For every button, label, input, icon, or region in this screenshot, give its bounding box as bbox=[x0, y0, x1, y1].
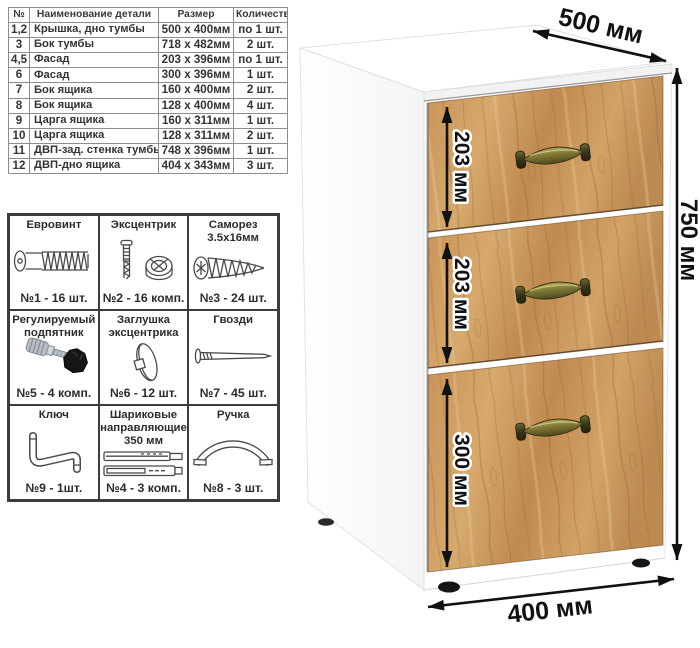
hardware-cell-euro-screw: Евровинт №1 - 16 шт. bbox=[9, 215, 99, 310]
part-number: 8 bbox=[9, 98, 30, 113]
part-name: Фасад bbox=[30, 53, 159, 68]
hardware-title: Ручка bbox=[217, 409, 250, 422]
part-size: 160 х 311мм bbox=[159, 113, 234, 128]
part-number: 1,2 bbox=[9, 23, 30, 38]
part-number: 6 bbox=[9, 68, 30, 83]
part-quantity: 1 шт. bbox=[234, 143, 288, 158]
part-name: Бок тумбы bbox=[30, 38, 159, 53]
part-number: 7 bbox=[9, 83, 30, 98]
hardware-title: Шариковые направляющие 350 мм bbox=[100, 409, 187, 447]
part-quantity: 3 шт. bbox=[234, 158, 288, 173]
hardware-count: №5 - 4 комп. bbox=[16, 386, 91, 400]
hardware-cell-hex-key: Ключ №9 - 1шт. bbox=[9, 405, 99, 500]
parts-row: 9 Царга ящика 160 х 311мм 1 шт. bbox=[9, 113, 288, 128]
hardware-cell-cam-lock: Эксцентрик №2 - 16 комп. bbox=[99, 215, 189, 310]
parts-table: № Наименование детали Размер Количество … bbox=[8, 7, 288, 174]
parts-row: 8 Бок ящика 128 х 400мм 4 шт. bbox=[9, 98, 288, 113]
drawer1-dimension-label: 203 мм bbox=[450, 131, 473, 203]
cam-lock-icon bbox=[102, 232, 184, 291]
hardware-count: №6 - 12 шт. bbox=[110, 386, 177, 400]
hardware-count: №4 - 3 комп. bbox=[106, 481, 181, 495]
parts-row: 1,2 Крышка, дно тумбы 500 х 400мм по 1 ш… bbox=[9, 23, 288, 38]
hardware-title: Заглушка эксцентрика bbox=[101, 314, 187, 340]
parts-table-header-row: № Наименование детали Размер Количество bbox=[9, 8, 288, 23]
hardware-count: №7 - 45 шт. bbox=[200, 386, 267, 400]
part-quantity: 2 шт. bbox=[234, 83, 288, 98]
part-name: Бок ящика bbox=[30, 98, 159, 113]
hardware-cell-drawer-slides: Шариковые направляющие 350 мм №4 - 3 ком… bbox=[99, 405, 189, 500]
part-size: 128 х 400мм bbox=[159, 98, 234, 113]
part-number: 4,5 bbox=[9, 53, 30, 68]
parts-row: 11 ДВП-зад. стенка тумбы 748 х 396мм 1 ш… bbox=[9, 143, 288, 158]
hardware-cell-self-tapping-screw: Саморез 3.5х16мм №3 - 24 шт. bbox=[188, 215, 278, 310]
part-number: 12 bbox=[9, 158, 30, 173]
handle-icon bbox=[191, 422, 275, 481]
part-size: 404 х 343мм bbox=[159, 158, 234, 173]
col-header-quantity: Количество bbox=[234, 8, 288, 23]
euro-screw-icon bbox=[13, 232, 95, 291]
hex-key-icon bbox=[13, 422, 95, 481]
parts-row: 6 Фасад 300 х 396мм 1 шт. bbox=[9, 68, 288, 83]
hardware-title: Евровинт bbox=[26, 219, 81, 232]
part-size: 500 х 400мм bbox=[159, 23, 234, 38]
col-header-name: Наименование детали bbox=[30, 8, 159, 23]
parts-row: 3 Бок тумбы 718 х 482мм 2 шт. bbox=[9, 38, 288, 53]
parts-row: 10 Царга ящика 128 х 311мм 2 шт. bbox=[9, 128, 288, 143]
part-quantity: 1 шт. bbox=[234, 113, 288, 128]
part-name: Царга ящика bbox=[30, 113, 159, 128]
hardware-cell-cam-cover: Заглушка эксцентрика №6 - 12 шт. bbox=[99, 310, 189, 405]
drawer-slides-icon bbox=[101, 447, 185, 481]
hardware-cell-adjustable-foot: Регулируемый подпятник №5 - 4 комп. bbox=[9, 310, 99, 405]
hardware-count: №2 - 16 комп. bbox=[103, 291, 185, 305]
foot bbox=[632, 559, 650, 568]
hardware-title: Ключ bbox=[39, 409, 69, 422]
hardware-title: Эксцентрик bbox=[111, 219, 176, 232]
hardware-title: Саморез 3.5х16мм bbox=[190, 219, 276, 245]
part-name: Крышка, дно тумбы bbox=[30, 23, 159, 38]
part-name: ДВП-дно ящика bbox=[30, 158, 159, 173]
foot bbox=[318, 518, 334, 526]
part-number: 3 bbox=[9, 38, 30, 53]
self-tapping-screw-icon bbox=[192, 245, 274, 291]
hardware-title: Регулируемый подпятник bbox=[11, 314, 97, 340]
hardware-cell-handle: Ручка №8 - 3 шт. bbox=[188, 405, 278, 500]
parts-row: 7 Бок ящика 160 х 400мм 2 шт. bbox=[9, 83, 288, 98]
part-quantity: 4 шт. bbox=[234, 98, 288, 113]
part-quantity: по 1 шт. bbox=[234, 53, 288, 68]
height-dimension-label: 750 мм bbox=[675, 199, 700, 281]
hardware-count: №9 - 1шт. bbox=[25, 481, 82, 495]
part-quantity: 2 шт. bbox=[234, 38, 288, 53]
part-name: Фасад bbox=[30, 68, 159, 83]
drawer2-dimension-label: 203 мм bbox=[450, 258, 473, 330]
hardware-count: №8 - 3 шт. bbox=[203, 481, 263, 495]
part-quantity: по 1 шт. bbox=[234, 23, 288, 38]
col-header-size: Размер bbox=[159, 8, 234, 23]
hardware-count: №1 - 16 шт. bbox=[20, 291, 87, 305]
hardware-count: №3 - 24 шт. bbox=[200, 291, 267, 305]
hardware-cell-nail: Гвозди №7 - 45 шт. bbox=[188, 310, 278, 405]
part-size: 748 х 396мм bbox=[159, 143, 234, 158]
part-name: Бок ящика bbox=[30, 83, 159, 98]
foot bbox=[438, 582, 460, 593]
part-number: 9 bbox=[9, 113, 30, 128]
part-number: 10 bbox=[9, 128, 30, 143]
part-quantity: 1 шт. bbox=[234, 68, 288, 83]
part-name: Царга ящика bbox=[30, 128, 159, 143]
part-quantity: 2 шт. bbox=[234, 128, 288, 143]
drawer3-dimension-label: 300 мм bbox=[450, 434, 473, 506]
col-header-number: № bbox=[9, 8, 30, 23]
adjustable-foot-icon bbox=[17, 340, 91, 386]
nail-icon bbox=[192, 327, 274, 386]
part-name: ДВП-зад. стенка тумбы bbox=[30, 143, 159, 158]
hardware-title: Гвозди bbox=[213, 314, 253, 327]
cabinet-side-panel bbox=[300, 48, 424, 590]
hardware-table: Евровинт №1 - 16 шт. bbox=[7, 213, 280, 502]
cam-cover-icon bbox=[102, 340, 184, 386]
part-number: 11 bbox=[9, 143, 30, 158]
part-size: 203 х 396мм bbox=[159, 53, 234, 68]
part-size: 300 х 396мм bbox=[159, 68, 234, 83]
parts-row: 4,5 Фасад 203 х 396мм по 1 шт. bbox=[9, 53, 288, 68]
parts-row: 12 ДВП-дно ящика 404 х 343мм 3 шт. bbox=[9, 158, 288, 173]
part-size: 718 х 482мм bbox=[159, 38, 234, 53]
part-size: 160 х 400мм bbox=[159, 83, 234, 98]
part-size: 128 х 311мм bbox=[159, 128, 234, 143]
